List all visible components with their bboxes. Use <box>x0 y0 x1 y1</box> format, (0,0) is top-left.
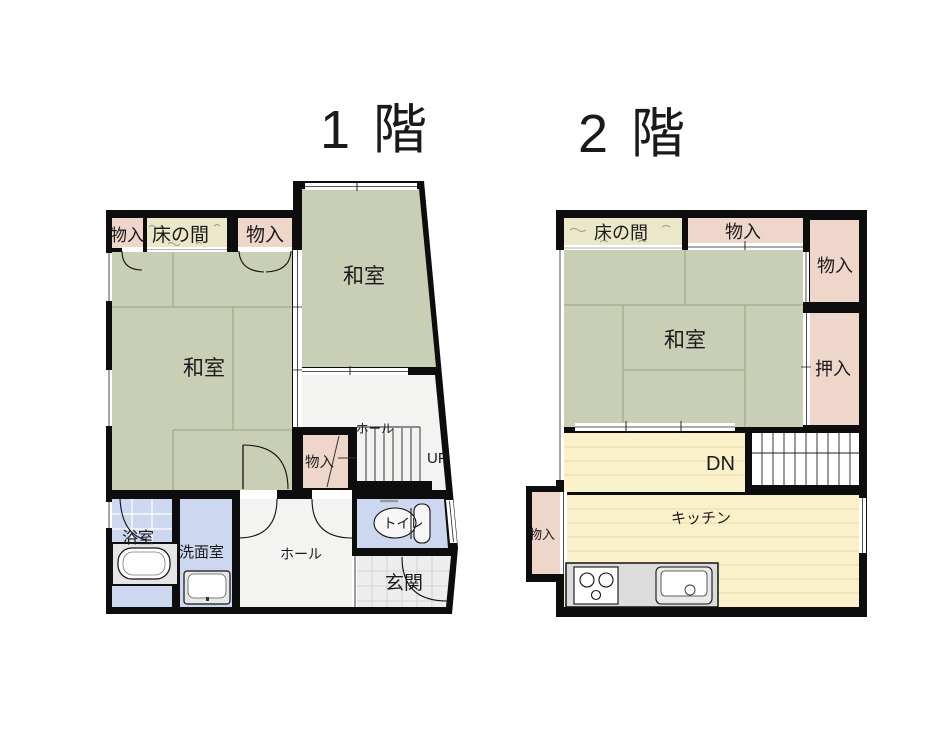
kitchen-counter <box>566 563 718 607</box>
bathroom-floor-lower-1f <box>112 585 172 607</box>
label-storage-top-2f: 物入 <box>725 222 761 242</box>
label-washitsu-right-1f: 和室 <box>343 265 385 288</box>
sliding-partition-1f <box>292 250 303 427</box>
label-storage-left-2f: 物入 <box>529 527 555 542</box>
stove-icon <box>574 567 618 604</box>
label-washitsu-2f: 和室 <box>664 329 706 352</box>
label-tokonoma-1f: 床の間 <box>152 224 209 246</box>
label-bathroom-1f: 浴室 <box>122 529 154 547</box>
window-east-wall-2f <box>859 498 866 553</box>
bathtub-icon <box>112 543 178 585</box>
kitchen-sink-icon <box>656 567 712 604</box>
window-top-washitsu-right-1f <box>305 182 417 191</box>
floor2-plan: 床の間 物入 物入 和室 押入 DN キッチン 物入 <box>526 210 867 617</box>
label-storage-top-left-1f: 物入 <box>110 226 144 245</box>
label-tokonoma-2f: 床の間 <box>594 223 648 243</box>
label-washroom-1f: 洗面室 <box>179 544 224 561</box>
floor2-title: 2 階 <box>578 104 689 164</box>
label-washitsu-left-1f: 和室 <box>183 357 225 380</box>
label-hall-lower-1f: ホール <box>280 546 322 562</box>
window-west-wall-2f <box>556 250 564 480</box>
floor1-plan: 物入 床の間 物入 和室 和室 ホール 物入 UP 浴室 洗面室 ホール トイレ… <box>106 181 458 614</box>
label-kitchen-2f: キッチン <box>671 510 731 527</box>
label-storage-top-right-1f: 物入 <box>246 224 284 246</box>
sink-icon <box>184 571 230 604</box>
floorplan-page: 1 階 2 階 <box>0 0 944 730</box>
hall-entrance-step-1f <box>352 556 357 607</box>
label-stairs-down-2f: DN <box>706 453 735 475</box>
label-storage-right-2f: 物入 <box>817 256 853 276</box>
label-entrance-1f: 玄関 <box>385 572 423 594</box>
stairs-down-2f <box>745 433 867 495</box>
label-hall-upper-1f: ホール <box>356 422 394 436</box>
label-oshiire-2f: 押入 <box>815 359 851 379</box>
label-storage-middle-1f: 物入 <box>305 454 334 471</box>
sliding-door-storage-left-2f <box>560 492 567 574</box>
label-toilet-1f: トイレ <box>383 516 424 531</box>
label-stairs-up-1f: UP <box>427 450 448 467</box>
floorplan-canvas: 1 階 2 階 <box>0 0 944 730</box>
floor1-title: 1 階 <box>320 100 431 160</box>
